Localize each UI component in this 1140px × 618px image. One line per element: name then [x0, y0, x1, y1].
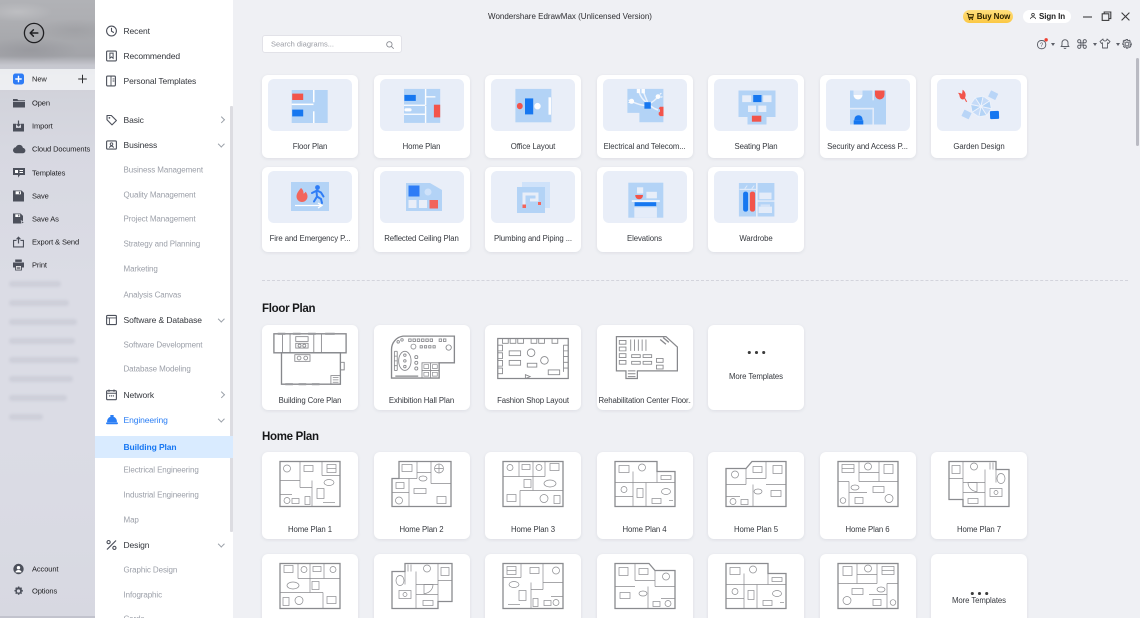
svg-text:?: ? — [1040, 42, 1044, 48]
